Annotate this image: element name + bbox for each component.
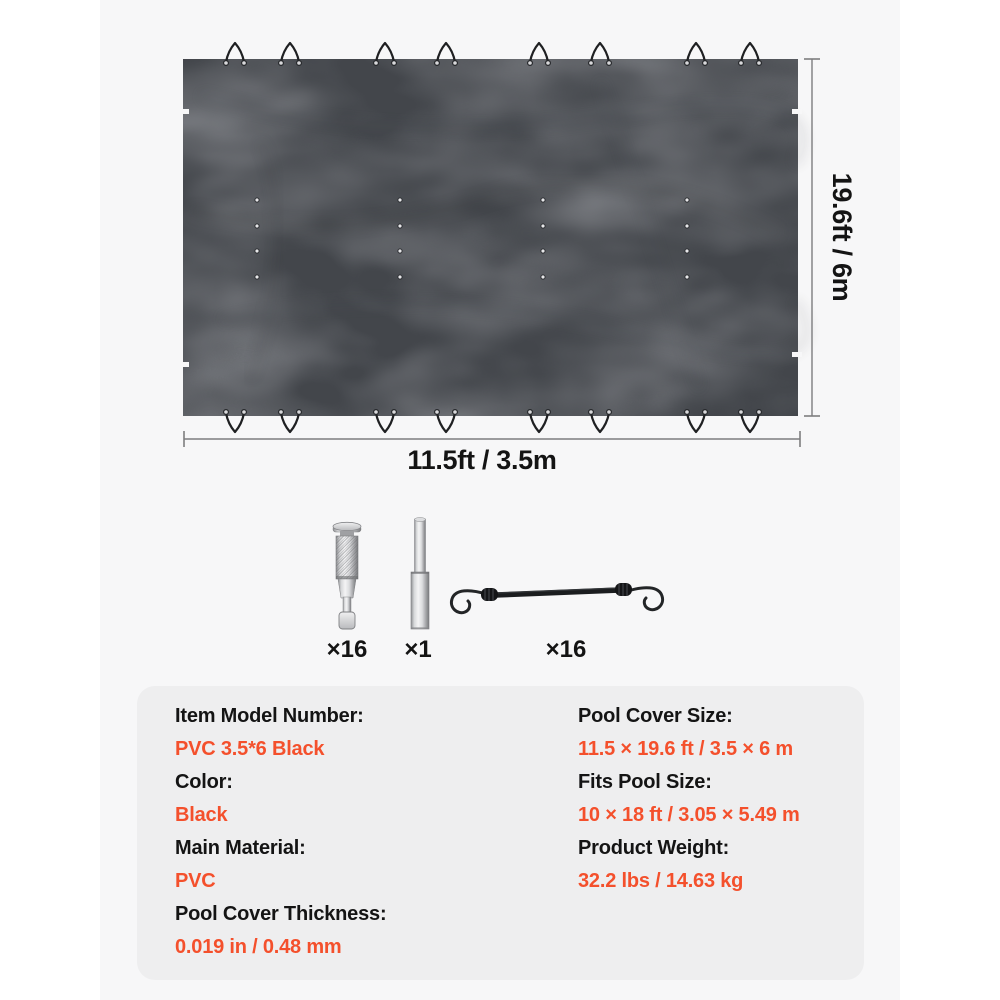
spec-row: Color: Black [175,766,386,832]
height-dimension-line: 19.6ft / 6m [804,59,857,416]
product-infographic: 11.5ft / 3.5m 19.6ft / 6m [0,0,1000,1000]
rod-count-label: ×1 [404,636,431,663]
spec-row: Product Weight: 32.2 lbs / 14.63 kg [578,832,800,898]
spec-label: Color: [175,766,386,799]
height-dimension-label: 19.6ft / 6m [827,173,857,302]
spec-value: 32.2 lbs / 14.63 kg [578,865,800,898]
spec-value: 0.019 in / 0.48 mm [175,931,386,964]
spec-panel: Item Model Number: PVC 3.5*6 Black Color… [137,686,864,980]
width-dimension-line: 11.5ft / 3.5m [184,431,800,475]
width-dimension-label: 11.5ft / 3.5m [407,445,556,475]
spec-row: Fits Pool Size: 10 × 18 ft / 3.05 × 5.49… [578,766,800,832]
bungee-count-label: ×16 [546,636,587,663]
spec-label: Product Weight: [578,832,800,865]
bungee-cord-icon [451,583,662,613]
spec-label: Item Model Number: [175,700,386,733]
spec-label: Main Material: [175,832,386,865]
anchor-icon [333,522,361,629]
spec-value: Black [175,799,386,832]
spec-value: 10 × 18 ft / 3.05 × 5.49 m [578,799,800,832]
spec-row: Main Material: PVC [175,832,386,898]
spec-value: 11.5 × 19.6 ft / 3.5 × 6 m [578,733,800,766]
spec-label: Pool Cover Thickness: [175,898,386,931]
spec-label: Pool Cover Size: [578,700,800,733]
spec-column-left: Item Model Number: PVC 3.5*6 Black Color… [175,700,386,964]
installation-rod-icon [411,518,429,630]
spec-row: Pool Cover Size: 11.5 × 19.6 ft / 3.5 × … [578,700,800,766]
anchor-count-label: ×16 [327,636,368,663]
spec-label: Fits Pool Size: [578,766,800,799]
spec-value: PVC 3.5*6 Black [175,733,386,766]
spec-row: Pool Cover Thickness: 0.019 in / 0.48 mm [175,898,386,964]
spec-column-right: Pool Cover Size: 11.5 × 19.6 ft / 3.5 × … [578,700,800,898]
pool-cover-diagram: 11.5ft / 3.5m 19.6ft / 6m [0,0,1000,675]
pool-cover-graphic [179,43,806,432]
spec-row: Item Model Number: PVC 3.5*6 Black [175,700,386,766]
spec-value: PVC [175,865,386,898]
